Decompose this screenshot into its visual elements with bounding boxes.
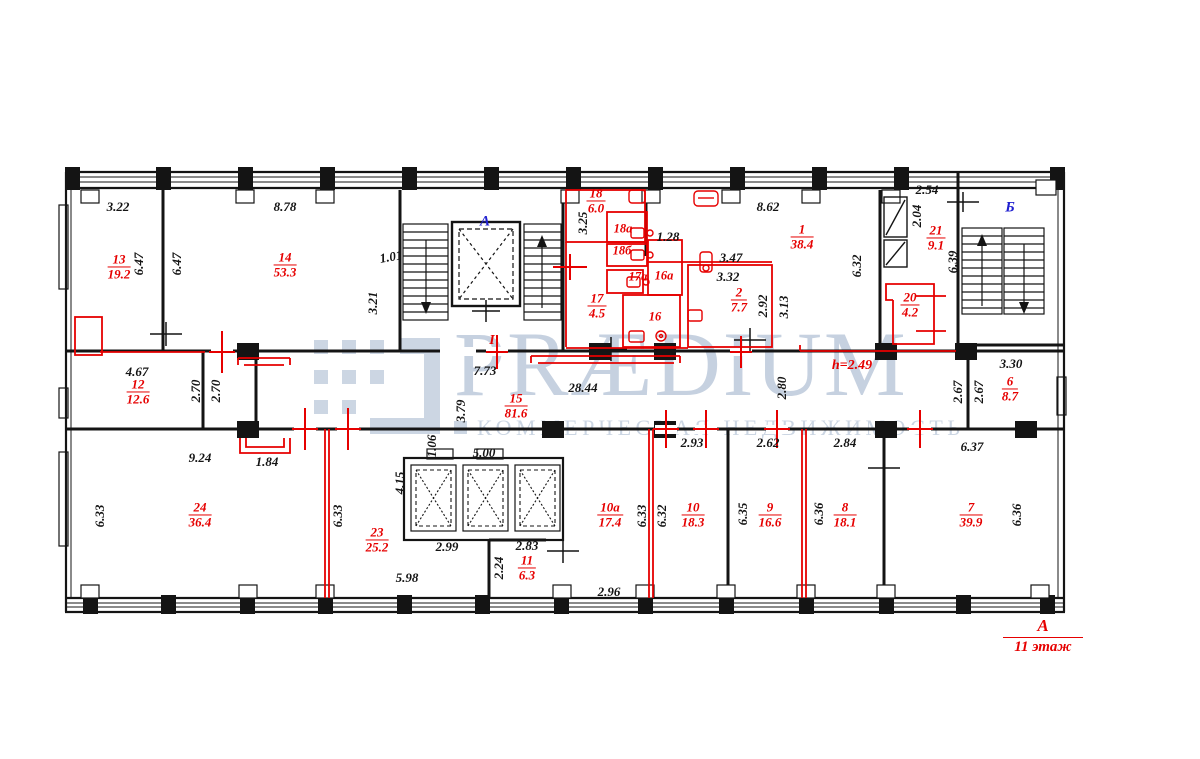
dimension-3.13: 3.13 — [776, 296, 792, 319]
dimension-1.84: 1.84 — [256, 454, 279, 470]
label-17а: 17а — [629, 270, 648, 285]
dimension-2.99: 2.99 — [436, 539, 459, 555]
label-I: I — [489, 333, 494, 349]
dimension-2.96: 2.96 — [598, 584, 621, 600]
dimension-2.93: 2.93 — [681, 435, 704, 451]
label-16: 16 — [649, 310, 662, 325]
dimension-3.32: 3.32 — [717, 269, 740, 285]
dimension-2.70: 2.70 — [188, 380, 204, 403]
dimension-3.30: 3.30 — [1000, 356, 1023, 372]
label-Б: Б — [1005, 200, 1015, 217]
dimension-6.37: 6.37 — [961, 439, 984, 455]
dimension-2.92: 2.92 — [755, 295, 771, 318]
room-label-21: 219.1 — [927, 223, 946, 252]
dimension-2.67: 2.67 — [971, 381, 987, 404]
dimension-2.62: 2.62 — [757, 435, 780, 451]
floor-plan-canvas: PRÆDIUM КОММЕРЧЕСКАЯ НЕДВИЖИМОСТЬ — [0, 0, 1200, 759]
dimension-9.24: 9.24 — [189, 450, 212, 466]
legend-axis-letter: А — [1003, 616, 1083, 638]
room-label-8: 818.1 — [834, 500, 857, 529]
dimension-3.21: 3.21 — [365, 292, 381, 315]
dimension-6.32: 6.32 — [654, 505, 670, 528]
dimension-2.80: 2.80 — [774, 377, 790, 400]
room-label-18: 186.0 — [587, 186, 606, 215]
dimension-3.22: 3.22 — [107, 199, 130, 215]
dimension-6.33: 6.33 — [92, 505, 108, 528]
dimension-6.39: 6.39 — [945, 251, 961, 274]
room-label-7: 739.9 — [960, 500, 983, 529]
dimension-2.70: 2.70 — [208, 380, 224, 403]
label-16а: 16а — [655, 269, 674, 284]
label-h=2.49: h=2.49 — [832, 358, 872, 374]
room-label-17: 174.5 — [588, 291, 607, 320]
room-label-10: 1018.3 — [682, 500, 705, 529]
dimension-6.47: 6.47 — [169, 253, 185, 276]
dimension-5.00: 5.00 — [473, 445, 496, 461]
dimension-28.44: 28.44 — [568, 380, 597, 396]
dimension-5.98: 5.98 — [396, 570, 419, 586]
dimension-6.33: 6.33 — [330, 505, 346, 528]
room-label-11: 116.3 — [518, 553, 536, 582]
legend-floor-label: 11 этаж — [1003, 639, 1083, 656]
label-А: А — [480, 214, 490, 231]
dimension-6.36: 6.36 — [811, 503, 827, 526]
dimension-3.47: 3.47 — [720, 250, 743, 266]
room-label-14: 1453.3 — [274, 250, 297, 279]
room-label-10а: 10а17.4 — [597, 500, 623, 529]
room-label-2: 27.7 — [731, 285, 747, 314]
room-label-20: 204.2 — [901, 290, 920, 319]
dimension-2.04: 2.04 — [909, 205, 925, 228]
dimension-2.54: 2.54 — [916, 182, 939, 198]
label-18б: 18б — [613, 244, 632, 259]
dimension-4.15: 4.15 — [392, 472, 408, 495]
room-label-15: 1581.6 — [505, 391, 528, 420]
dimension-3.79: 3.79 — [453, 400, 469, 423]
room-label-12: 1212.6 — [127, 377, 150, 406]
room-label-1: 138.4 — [791, 222, 814, 251]
floor-legend: А 11 этаж — [1003, 616, 1083, 656]
dimension-1.01: 1.01 — [378, 247, 403, 267]
dimension-6.47: 6.47 — [131, 253, 147, 276]
dimension-2.84: 2.84 — [834, 435, 857, 451]
room-label-6: 68.7 — [1002, 374, 1018, 403]
dimension-6.33: 6.33 — [634, 505, 650, 528]
room-label-23: 2325.2 — [366, 525, 389, 554]
room-label-9: 916.6 — [759, 500, 782, 529]
dimension-6.36: 6.36 — [1009, 504, 1025, 527]
dimension-1.28: 1.28 — [657, 229, 680, 245]
dimension-6.32: 6.32 — [849, 255, 865, 278]
room-label-13: 1319.2 — [108, 252, 131, 281]
dimension-8.62: 8.62 — [757, 199, 780, 215]
dimension-6.35: 6.35 — [735, 503, 751, 526]
dimension-8.78: 8.78 — [274, 199, 297, 215]
room-label-24: 2436.4 — [189, 500, 212, 529]
label-18а: 18а — [614, 222, 633, 237]
dimension-2.67: 2.67 — [950, 381, 966, 404]
dimension-2.24: 2.24 — [491, 557, 507, 580]
dimension-7.73: 7.73 — [474, 363, 497, 379]
dimension-1.06: 1.06 — [424, 435, 440, 458]
